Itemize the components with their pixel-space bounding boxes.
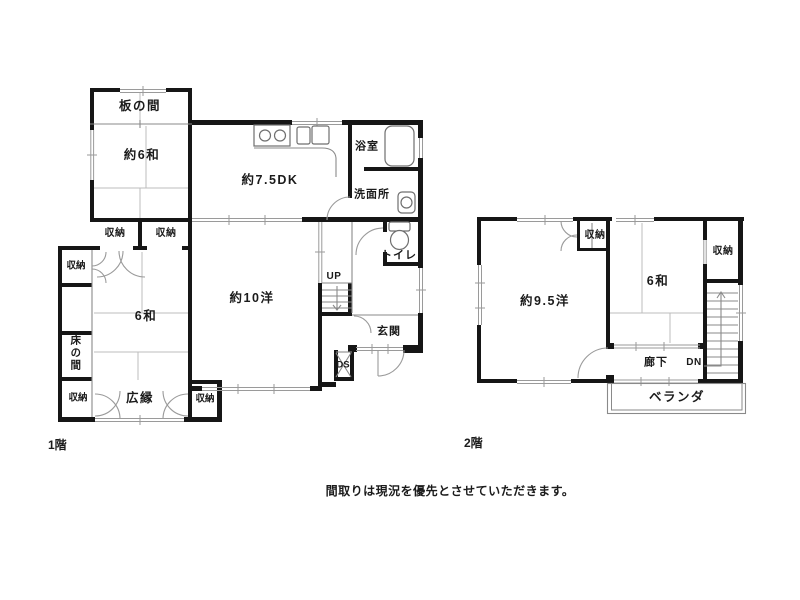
washbasin-icon bbox=[398, 192, 415, 213]
closet-label-1f-d: 収納 bbox=[68, 393, 87, 403]
closet-label-2f-a: 収納 bbox=[585, 231, 606, 241]
closet-label-1f-e: 収納 bbox=[195, 394, 214, 404]
label-ds: DS bbox=[336, 360, 349, 370]
toilet-icon bbox=[389, 222, 410, 250]
closet-label-2f-b: 収納 bbox=[713, 247, 734, 257]
floor1-label: 1階 bbox=[48, 436, 67, 453]
room-label-washroom: 洗面所 bbox=[354, 190, 390, 201]
room-label-bathroom: 浴室 bbox=[355, 142, 379, 153]
room-label-6-tatami-1f: 6和 bbox=[135, 310, 157, 323]
room-label-toilet: トイレ bbox=[381, 251, 417, 262]
closet-label-1f-c: 収納 bbox=[66, 261, 85, 271]
room-label-6-tatami-2f: 6和 bbox=[647, 275, 669, 288]
room-label-dk: 約7.5DK bbox=[242, 174, 299, 187]
closet-label-1f-b: 収納 bbox=[156, 229, 177, 239]
room-label-approx10-western: 約10洋 bbox=[230, 292, 275, 305]
label-dn: DN bbox=[686, 358, 701, 368]
room-label-hiroen: 広縁 bbox=[126, 392, 154, 405]
kitchen-stove-icon bbox=[254, 125, 290, 146]
floor2-label: 2階 bbox=[464, 434, 483, 451]
room-label-tokonoma: 床の間 bbox=[70, 334, 81, 372]
room-label-veranda: ベランダ bbox=[649, 391, 705, 404]
room-label-approx95-western: 約9.5洋 bbox=[520, 295, 570, 308]
disclaimer-note: 間取りは現況を優先とさせていただきます。 bbox=[326, 482, 575, 499]
kitchen-sink-icon bbox=[297, 126, 329, 144]
floor1-partitions bbox=[90, 120, 418, 417]
room-label-itanoma: 板の間 bbox=[119, 100, 161, 113]
room-label-approx6-tatami: 約6和 bbox=[124, 149, 160, 162]
floorplan-page: 板の間 約6和 約7.5DK 浴室 洗面所 トイレ 約10洋 6和 床の間 広縁… bbox=[0, 0, 800, 600]
stairs-up bbox=[322, 286, 352, 310]
room-label-corridor: 廊下 bbox=[644, 358, 668, 369]
stairs-down bbox=[704, 292, 738, 373]
floorplan-canvas bbox=[0, 0, 800, 600]
bathtub-icon bbox=[385, 126, 414, 166]
floor1-walls bbox=[58, 88, 423, 422]
closet-label-1f-a: 収納 bbox=[105, 229, 126, 239]
floor1-plan bbox=[58, 86, 426, 425]
label-up: UP bbox=[327, 272, 342, 282]
floor2-plan bbox=[475, 215, 746, 414]
room-label-genkan: 玄関 bbox=[377, 327, 401, 338]
